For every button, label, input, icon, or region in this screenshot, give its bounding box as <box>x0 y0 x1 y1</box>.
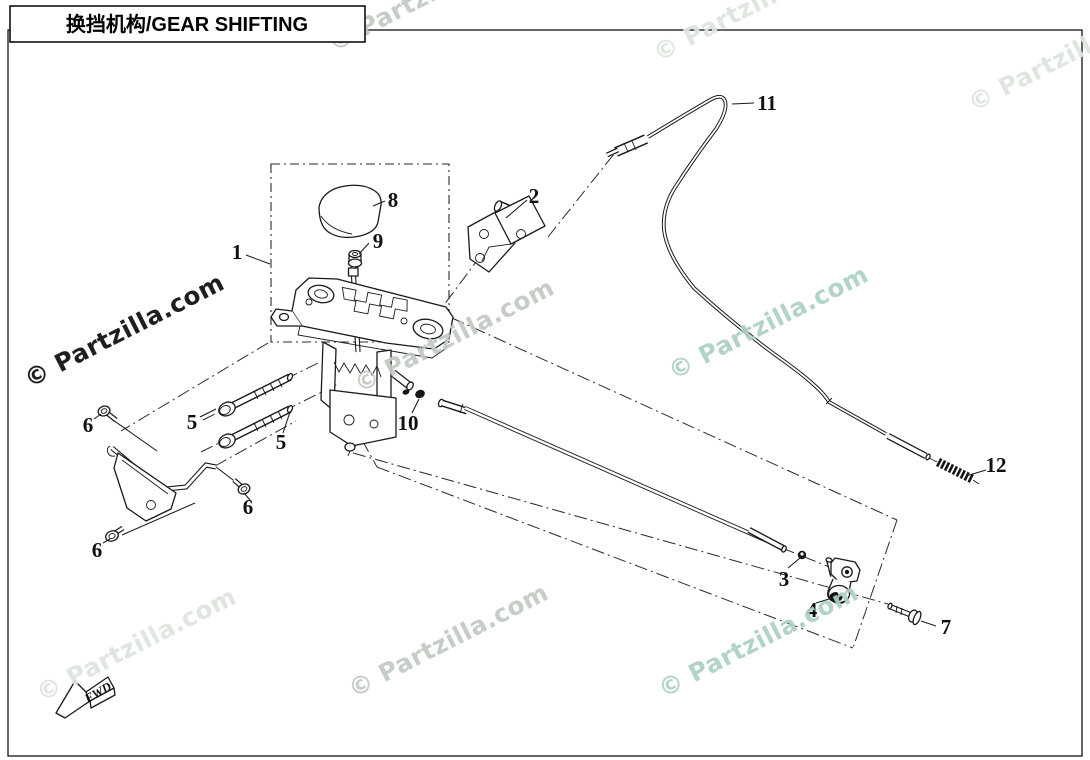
cable-spring-drawing <box>938 462 972 479</box>
shift-cable-drawing <box>607 97 979 484</box>
page-border <box>8 30 1082 756</box>
part-label-12[interactable]: 12 <box>986 453 1007 477</box>
part-label-6a[interactable]: 6 <box>83 413 94 437</box>
title-box: 换挡机构/GEAR SHIFTING <box>10 6 365 42</box>
screw-6a-drawing <box>97 404 116 420</box>
watermark-text: © Partzilla.com <box>343 577 552 703</box>
watermarks: © Partzilla.com © Partzilla.com © Partzi… <box>19 0 1090 707</box>
part-label-1[interactable]: 1 <box>232 240 243 264</box>
part-label-10[interactable]: 10 <box>398 411 419 435</box>
watermark-text: © Partzilla.com <box>653 577 862 703</box>
diagram-title: 换挡机构/GEAR SHIFTING <box>66 12 308 36</box>
shift-rod-drawing <box>414 388 806 559</box>
watermark-text: © Partzilla.com <box>31 581 240 707</box>
watermark-text: © Partzilla.com <box>648 0 857 67</box>
part-label-11[interactable]: 11 <box>757 91 777 115</box>
part-label-8[interactable]: 8 <box>388 188 399 212</box>
parts-diagram-page: FWD 1 2 3 4 5 5 6 6 6 7 8 9 10 11 12 <box>0 0 1090 760</box>
part-label-5b[interactable]: 5 <box>276 430 287 454</box>
part-label-2[interactable]: 2 <box>529 184 540 208</box>
watermark-text: © Partzilla.com <box>19 267 228 393</box>
part-label-3[interactable]: 3 <box>779 567 790 591</box>
screw-6b-drawing <box>234 480 251 496</box>
part-label-6b[interactable]: 6 <box>243 495 254 519</box>
part-label-5a[interactable]: 5 <box>187 410 198 434</box>
leader-lines <box>94 103 986 626</box>
support-bracket-drawing <box>97 404 252 542</box>
bolt-7-drawing <box>887 603 922 626</box>
rod-nut-drawing <box>798 551 806 559</box>
rod-cap-drawing <box>414 388 426 399</box>
part-label-6c[interactable]: 6 <box>92 538 103 562</box>
part-label-7[interactable]: 7 <box>941 615 952 639</box>
watermark-text: © Partzilla.com <box>963 0 1090 117</box>
part-label-9[interactable]: 9 <box>373 229 384 253</box>
gear-shifter-assembly-drawing <box>271 185 453 456</box>
watermark-text: © Partzilla.com <box>663 259 872 385</box>
